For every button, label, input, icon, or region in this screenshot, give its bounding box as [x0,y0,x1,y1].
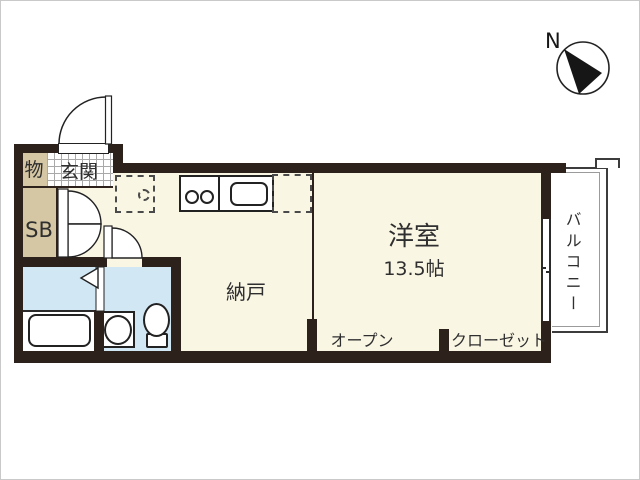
label-shoebox: SB [21,219,57,242]
label-entrance: 玄関 [49,162,109,183]
label-storage: 物 [20,160,48,181]
washroom-door-leaf [104,226,112,258]
label-balcony: バルコニー [563,193,581,333]
shoebox-door-leaf [58,189,68,257]
bath-folding-door-marker [81,268,98,288]
line-art-overlay: N [1,1,640,480]
shoebox-door-arc-top [68,191,101,224]
entrance-door-leaf [106,96,112,144]
label-storage-room: 納戸 [206,281,286,303]
washroom-door-arc [112,228,142,258]
label-western-room: 洋室 [344,223,484,252]
entrance-door-arc [59,97,106,144]
label-closet: クローゼット [447,332,551,350]
label-western-room-size: 13.5帖 [344,259,484,280]
floor-plan: N 物 玄関 SB 納戸 洋室 13.5帖 オープン クローゼット バルコニー [0,0,640,480]
label-open-storage: オープン [312,332,412,350]
shoebox-door-arc-bottom [68,224,101,257]
compass-north-label: N [545,29,561,53]
